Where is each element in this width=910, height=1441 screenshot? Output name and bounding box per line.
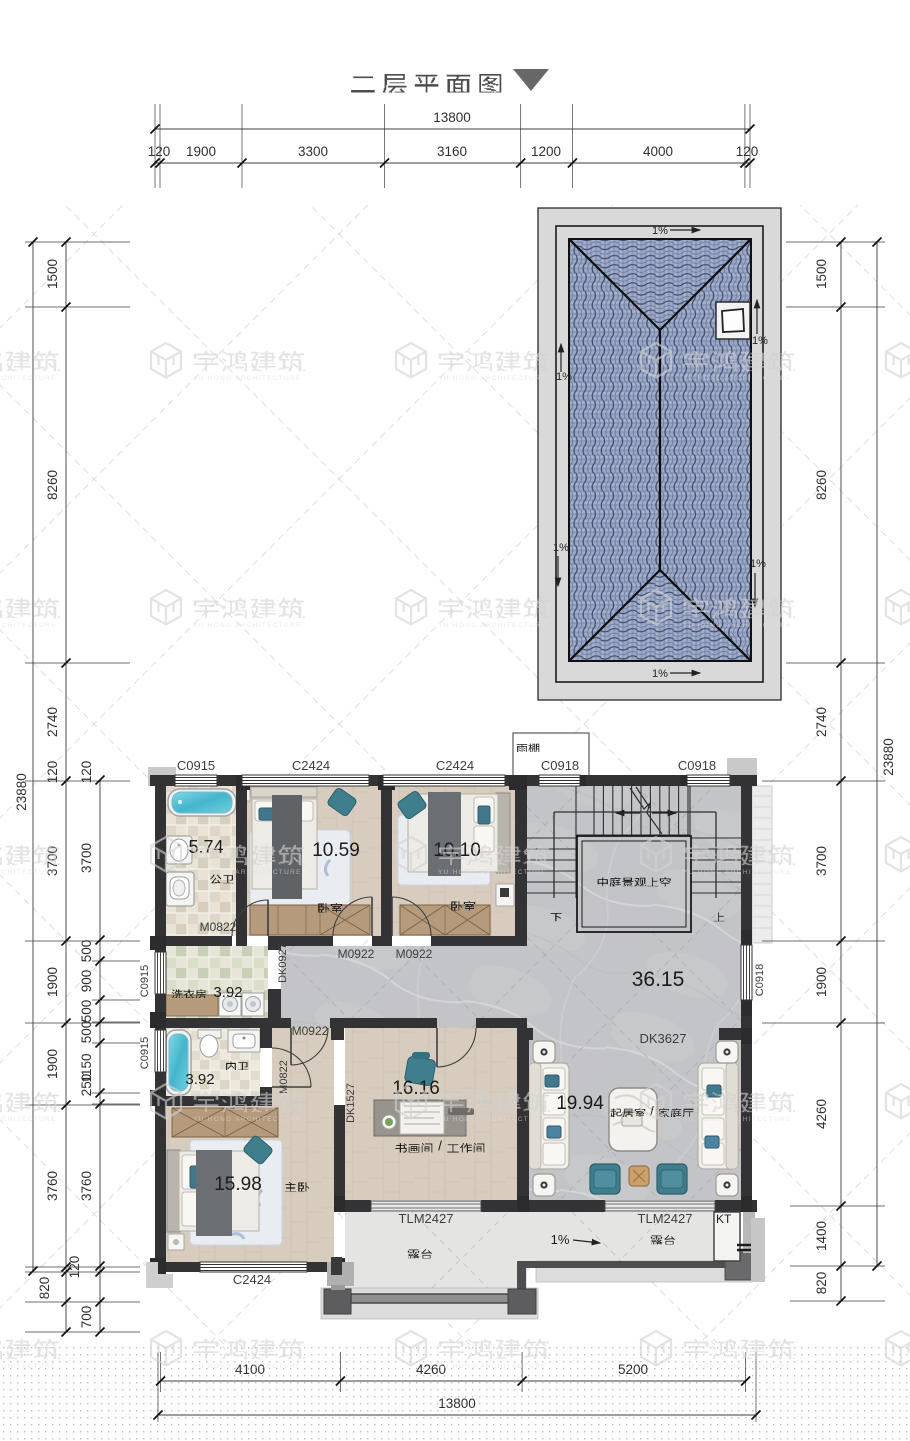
svg-text:1900: 1900 (45, 967, 60, 997)
svg-text:DK1527: DK1527 (345, 1083, 357, 1123)
svg-text:3700: 3700 (814, 846, 829, 876)
svg-text:19.94: 19.94 (556, 1093, 604, 1114)
svg-text:4260: 4260 (814, 1099, 829, 1129)
svg-text:3700: 3700 (79, 843, 94, 873)
svg-text:3300: 3300 (298, 144, 328, 159)
svg-text:5200: 5200 (618, 1362, 648, 1377)
svg-text:3760: 3760 (45, 1171, 60, 1201)
svg-text:/: / (438, 1139, 442, 1154)
svg-text:1%: 1% (553, 542, 569, 554)
svg-text:1200: 1200 (531, 144, 561, 159)
svg-text:13800: 13800 (433, 110, 471, 125)
svg-text:1400: 1400 (814, 1221, 829, 1251)
svg-text:C0915: C0915 (177, 758, 215, 773)
svg-text:C2424: C2424 (233, 1272, 271, 1287)
svg-text:DK3627: DK3627 (640, 1031, 687, 1046)
svg-text:1900: 1900 (45, 1049, 60, 1079)
svg-text:M0922: M0922 (338, 947, 375, 961)
svg-text:C0915: C0915 (139, 965, 151, 997)
svg-text:820: 820 (814, 1272, 829, 1295)
svg-text:C0918: C0918 (678, 758, 716, 773)
svg-text:KT: KT (716, 1212, 732, 1226)
svg-text:1%: 1% (551, 1232, 570, 1247)
svg-text:4000: 4000 (643, 144, 673, 159)
svg-text:23880: 23880 (14, 773, 29, 811)
svg-text:1500: 1500 (45, 259, 60, 289)
svg-text:120: 120 (45, 761, 60, 784)
svg-text:TLM2427: TLM2427 (638, 1211, 693, 1226)
svg-text:120: 120 (148, 144, 171, 159)
svg-text:500: 500 (79, 940, 94, 963)
svg-text:23880: 23880 (881, 738, 896, 776)
svg-text:15.98: 15.98 (214, 1174, 262, 1195)
svg-text:1%: 1% (556, 371, 572, 383)
svg-text:1%: 1% (750, 558, 766, 570)
svg-text:1900: 1900 (814, 967, 829, 997)
svg-text:M0822: M0822 (200, 920, 237, 934)
svg-text:16.16: 16.16 (392, 1078, 440, 1099)
svg-text:TLM2427: TLM2427 (399, 1211, 454, 1226)
svg-text:120: 120 (67, 1256, 82, 1279)
svg-text:3160: 3160 (437, 144, 467, 159)
svg-text:C2424: C2424 (436, 758, 474, 773)
svg-text:250: 250 (79, 1074, 94, 1097)
svg-text:DK0927: DK0927 (277, 943, 289, 983)
svg-text:C0918: C0918 (754, 964, 766, 996)
svg-text:2740: 2740 (45, 707, 60, 737)
svg-text:8260: 8260 (45, 470, 60, 500)
svg-text:700: 700 (79, 1306, 94, 1329)
svg-text:36.15: 36.15 (632, 968, 685, 991)
svg-text:1500: 1500 (814, 259, 829, 289)
svg-text:3760: 3760 (79, 1171, 94, 1201)
svg-text:500: 500 (79, 1021, 94, 1044)
svg-text:M0922: M0922 (396, 947, 433, 961)
svg-text:10.59: 10.59 (312, 840, 360, 861)
svg-text:1%: 1% (652, 225, 668, 237)
svg-text:13800: 13800 (438, 1396, 476, 1411)
svg-text:3.92: 3.92 (185, 1071, 214, 1088)
svg-text:1%: 1% (652, 668, 668, 680)
svg-text:500: 500 (79, 1000, 94, 1023)
svg-text:900: 900 (79, 970, 94, 993)
svg-text:C2424: C2424 (292, 758, 330, 773)
svg-text:3.92: 3.92 (213, 984, 242, 1001)
svg-text:C0915: C0915 (139, 1037, 151, 1069)
svg-text:820: 820 (37, 1277, 52, 1300)
svg-text:2740: 2740 (814, 707, 829, 737)
svg-text:1%: 1% (752, 335, 768, 347)
svg-text:120: 120 (736, 144, 759, 159)
svg-text:120: 120 (79, 761, 94, 784)
svg-text:C0918: C0918 (541, 758, 579, 773)
svg-text:1900: 1900 (186, 144, 216, 159)
svg-text:M0922: M0922 (292, 1024, 329, 1038)
svg-text:8260: 8260 (814, 470, 829, 500)
svg-text:M0822: M0822 (278, 1060, 290, 1094)
